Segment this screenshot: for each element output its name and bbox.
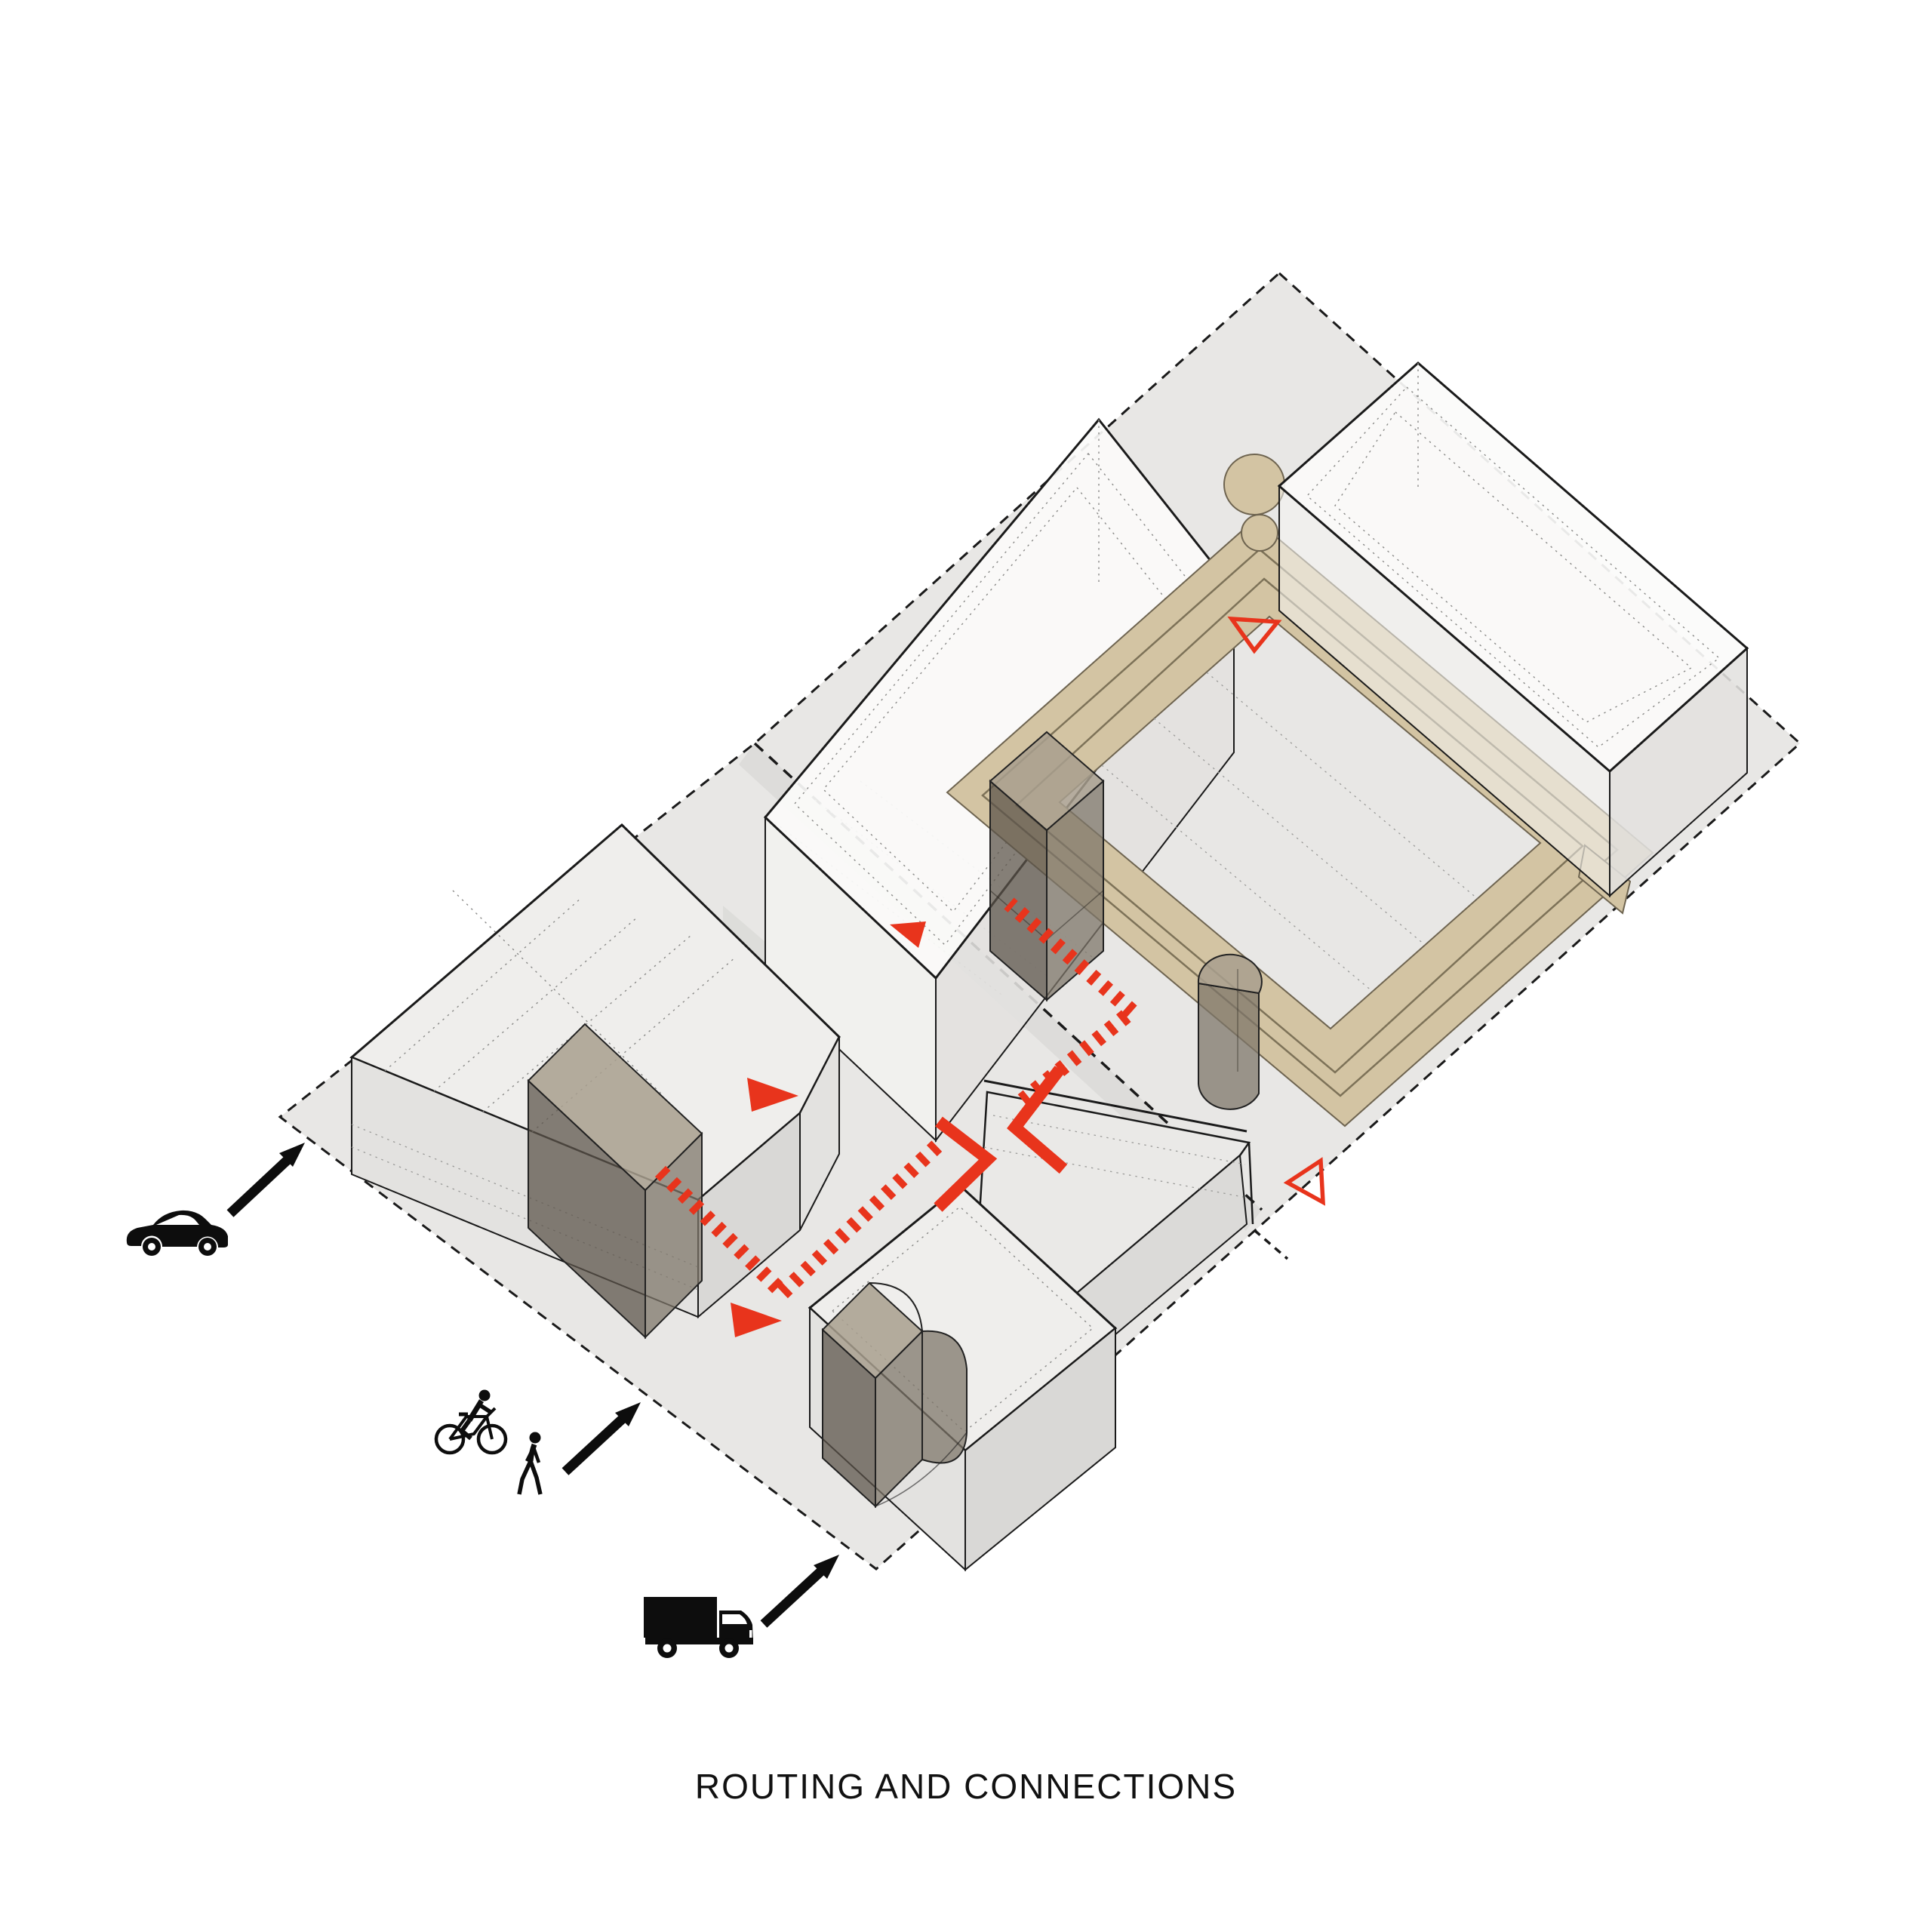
entry-truck <box>644 1555 839 1658</box>
pedestrian-icon <box>519 1432 541 1495</box>
walkway-stair-blob <box>1224 454 1284 515</box>
car-entry-arrow <box>230 1143 305 1214</box>
arch-volume-apse <box>922 1331 967 1463</box>
truck-icon <box>644 1597 753 1658</box>
entry-car <box>127 1143 305 1256</box>
axonometric-diagram <box>0 0 1932 1932</box>
half-cylinder-body <box>1198 983 1259 1109</box>
stair-tower <box>990 732 1103 1000</box>
walkway-stair-blob-small <box>1241 515 1278 551</box>
entry-bike-pedestrian <box>436 1390 641 1495</box>
bike-entry-arrow <box>565 1402 641 1472</box>
routing-diagram: ROUTING AND CONNECTIONS <box>0 0 1932 1932</box>
diagram-title: ROUTING AND CONNECTIONS <box>0 1766 1932 1807</box>
half-cylinder-core <box>1198 955 1262 1109</box>
car-icon <box>127 1211 228 1256</box>
gap-dashed-edge <box>1254 1230 1287 1259</box>
cyclist-icon <box>436 1390 506 1454</box>
truck-entry-arrow <box>764 1555 839 1624</box>
